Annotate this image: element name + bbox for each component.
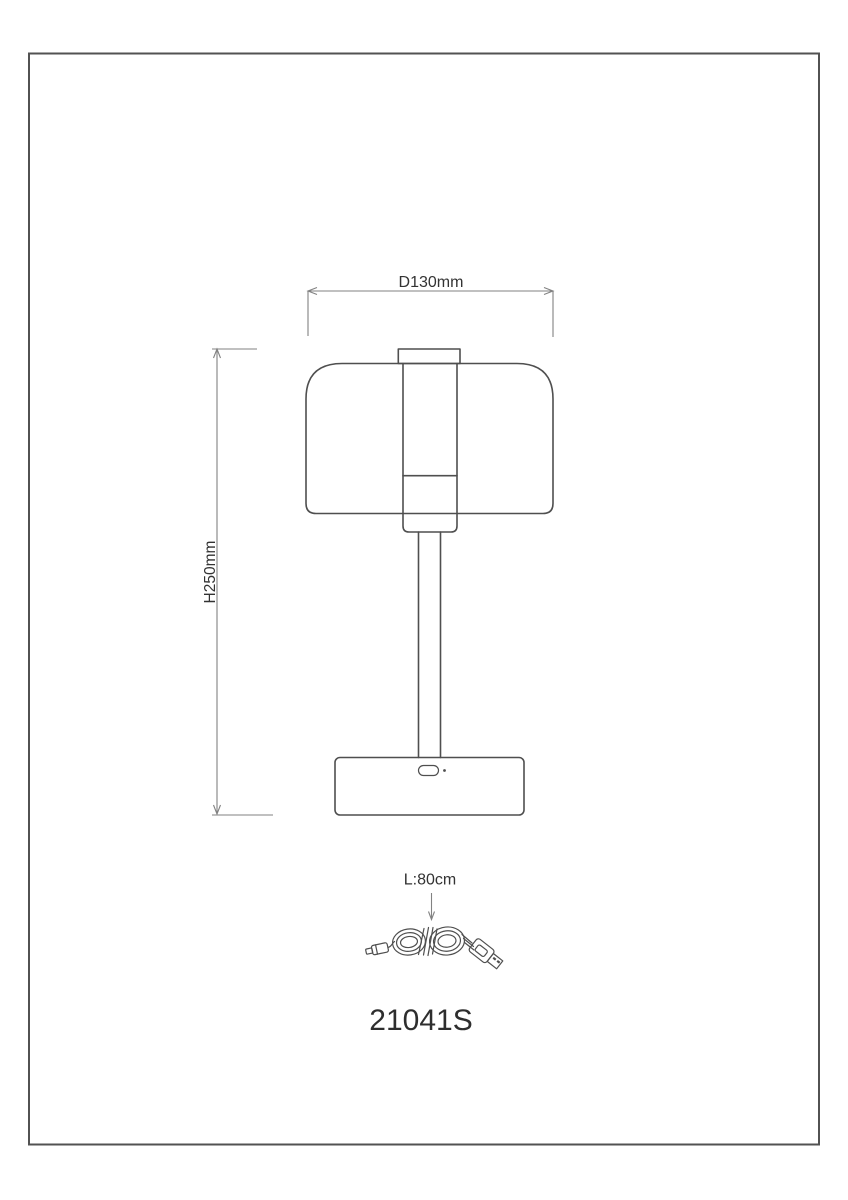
lamp-outline-drawing bbox=[306, 349, 553, 815]
usb-plug-icon bbox=[468, 938, 505, 972]
lamp-tube bbox=[403, 364, 457, 533]
lamp-top-cap bbox=[398, 349, 460, 364]
diameter-label: D130mm bbox=[399, 274, 464, 291]
height-label: H250mm bbox=[202, 541, 219, 604]
cable-length-annotation: L:80cm bbox=[404, 872, 456, 920]
lamp-shade bbox=[306, 364, 553, 514]
lamp-technical-drawing: D130mm H250mm L:80cm bbox=[0, 0, 848, 1200]
sheet-border bbox=[29, 54, 819, 1145]
cable-drawing bbox=[365, 925, 505, 971]
dc-plug-icon bbox=[365, 942, 389, 956]
diameter-dimension: D130mm bbox=[308, 274, 553, 337]
drawing-page: D130mm H250mm L:80cm bbox=[0, 0, 848, 1200]
cable-coil-right-lobe bbox=[428, 925, 466, 957]
lamp-base bbox=[335, 758, 524, 816]
touch-switch bbox=[419, 766, 439, 776]
indicator-dot bbox=[443, 769, 446, 772]
cable-length-label: L:80cm bbox=[404, 872, 456, 889]
model-number-label: 21041S bbox=[369, 1004, 472, 1037]
height-dimension: H250mm bbox=[202, 349, 273, 815]
